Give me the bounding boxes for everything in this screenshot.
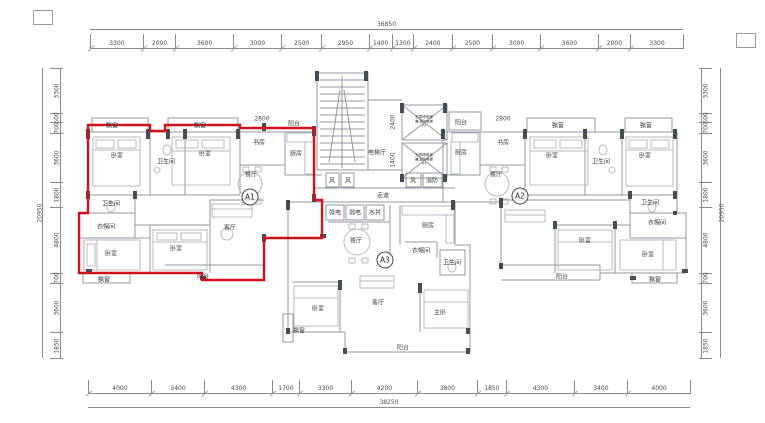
dimension-value: 4300: [533, 385, 548, 392]
room-label: 客厅: [372, 298, 384, 307]
dimension-segment: 4000: [88, 380, 151, 393]
unit-badge-a3: A3: [377, 252, 394, 269]
room-label: 卧室: [579, 236, 591, 245]
dimension-segment: 1700: [272, 380, 299, 393]
dimension-segment: 4200: [351, 380, 417, 393]
room-label: 阳台: [397, 343, 409, 352]
dimension-value: 3600: [702, 300, 709, 315]
sheet-corner-mark: [33, 10, 53, 25]
dimension-value: 2950: [338, 40, 353, 47]
unit-badge-a1: A1: [242, 189, 259, 206]
dimension-value: 4000: [112, 385, 127, 392]
dimension-value: 3400: [593, 385, 608, 392]
room-label: 消防: [426, 176, 438, 185]
dimension-segment: 4300: [506, 380, 573, 393]
room-label: 卫生间: [641, 198, 659, 207]
unit-badge-a2: A2: [512, 188, 529, 205]
sheet-corner-mark: [736, 33, 756, 48]
dimension-value: 3300: [318, 385, 333, 392]
dimension-value: 20950: [37, 203, 44, 222]
dimension-value: 3300: [53, 83, 60, 98]
dimension-value: 38250: [379, 399, 398, 406]
room-label: 厨房: [290, 149, 302, 158]
dimension-segment: 3000: [233, 34, 281, 48]
room-label: 飘窗: [98, 275, 110, 284]
structural-walls: [86, 71, 688, 354]
dimension-segment: 4800: [50, 207, 63, 272]
room-label: 卧室: [170, 244, 182, 253]
dimension-value: 2500: [294, 40, 309, 47]
dimension-value: 3000: [250, 40, 265, 47]
room-label: 飘窗: [106, 121, 118, 130]
dimension-value: 2000: [152, 40, 167, 47]
dimension-segment: 1300: [392, 34, 413, 48]
room-label: 卫生间: [592, 157, 610, 166]
dimension-segment: 3800: [417, 380, 477, 393]
room-label: 阳台: [556, 272, 568, 281]
room-label: 卧室: [312, 304, 324, 313]
room-label: 飘窗: [640, 121, 652, 130]
dimension-segment: 3600: [50, 283, 63, 332]
dimension-value: 3400: [170, 385, 185, 392]
room-label: 飘窗: [293, 326, 305, 335]
room-label: 厨房: [455, 148, 467, 157]
dimension-value: 1300: [395, 40, 410, 47]
dimension-value: 3600: [562, 40, 577, 47]
dimension-segment: 3600: [175, 34, 233, 48]
dimension-value: 3300: [109, 40, 124, 47]
dimension-segment: 3600: [540, 34, 598, 48]
dimension-segment: 700: [50, 122, 63, 132]
dimension-value: 4800: [53, 233, 60, 248]
dimension-value: 1850: [53, 338, 60, 353]
dimension-value: 4800: [702, 233, 709, 248]
dimension-chain-top: 3300200036003000250029501400130024002500…: [90, 34, 684, 49]
dimension-value: 1700: [278, 385, 293, 392]
dimension-value: 1400: [373, 40, 388, 47]
dimension-segment: 3300: [699, 68, 712, 113]
room-label: 飘窗: [649, 275, 661, 284]
room-label: 衣帽间: [648, 218, 666, 227]
room-label: 餐厅: [245, 170, 257, 179]
floor-plan-sheet: 36850 3300200036003000250029501400130024…: [0, 0, 765, 423]
dimension-segment: 3300: [50, 68, 63, 113]
dimension-segment: 1400: [369, 34, 392, 48]
room-label: 厨房: [422, 221, 434, 230]
dimension-value: 3300: [649, 40, 664, 47]
dimension-segment: 4800: [699, 207, 712, 272]
dimension-total-right: 20950: [716, 68, 728, 358]
dimension-segment: 1800: [699, 182, 712, 207]
elevator-note: 无障碍电梯兼消防电梯01: [405, 154, 443, 166]
dimension-value: 1800: [702, 187, 709, 202]
dimension-segment: 4300: [204, 380, 271, 393]
dimension-value: 3600: [702, 150, 709, 165]
dimension-value: 3600: [53, 300, 60, 315]
room-label: 卧室: [111, 151, 123, 160]
room-label: 餐厅: [350, 236, 362, 245]
dimension-segment: 2000: [598, 34, 630, 48]
floor-plan-svg: [0, 0, 765, 423]
interior-dimension: 2400: [390, 114, 397, 129]
room-label: 餐厅: [490, 170, 502, 179]
room-label: 书房: [497, 138, 509, 147]
dimension-chain-right: 330060070036001800480070036001850: [699, 68, 712, 359]
dimension-segment: 600: [699, 113, 712, 122]
room-label: 衣帽间: [412, 246, 430, 255]
dimension-value: 3300: [702, 83, 709, 98]
room-label: 阳台: [197, 272, 209, 281]
room-label: 阳台: [288, 119, 300, 128]
dimension-value: 3800: [440, 385, 455, 392]
dimension-segment: 700: [50, 273, 63, 283]
room-label: 客厅: [224, 223, 236, 232]
dimension-value: 3600: [53, 150, 60, 165]
room-label: 卧室: [105, 249, 117, 258]
dimension-value: 3600: [197, 40, 212, 47]
room-label: 卧室: [642, 250, 654, 259]
building-walls: [79, 73, 686, 352]
dimension-segment: 4000: [627, 380, 690, 393]
dimension-segment: 2000: [143, 34, 175, 48]
dimension-segment: 3000: [492, 34, 540, 48]
dimension-total-top: 36850: [90, 20, 683, 30]
room-label: 水井: [369, 208, 381, 217]
dimension-value: 2500: [465, 40, 480, 47]
room-label: 走道: [377, 191, 389, 200]
dimension-chain-left: 330060070036001800480070036001850: [50, 68, 63, 359]
room-label: 阳台: [455, 118, 467, 127]
dimension-segment: 3600: [50, 133, 63, 182]
dimension-segment: 2500: [452, 34, 492, 48]
dimension-value: 1800: [53, 187, 60, 202]
dimension-segment: 2400: [413, 34, 452, 48]
room-label: 风: [345, 176, 351, 185]
dimension-value: 2400: [425, 40, 440, 47]
dimension-segment: 1800: [50, 182, 63, 207]
dimension-value: 4300: [231, 385, 246, 392]
room-label: 卧室: [546, 151, 558, 160]
dimension-segment: 2950: [321, 34, 368, 48]
room-label: 衣帽间: [97, 222, 115, 231]
room-label: 强电: [329, 208, 341, 217]
dimension-segment: 600: [50, 113, 63, 122]
dimension-segment: 2500: [281, 34, 321, 48]
room-label: 飘窗: [194, 121, 206, 130]
dimension-value: 2000: [607, 40, 622, 47]
dimension-total-left: 20950: [34, 68, 46, 358]
room-label: 卫生间: [102, 199, 120, 208]
dimension-segment: 1850: [699, 332, 712, 358]
dimension-total-bottom: 38250: [88, 398, 690, 408]
dimension-segment: 3400: [574, 380, 628, 393]
room-label: 飘窗: [552, 121, 564, 130]
interior-dimension: 1400: [390, 152, 397, 167]
dimension-value: 1850: [702, 338, 709, 353]
room-label: 卧室: [199, 149, 211, 158]
room-label: 电梯厅: [368, 148, 386, 157]
dimension-segment: 3600: [699, 133, 712, 182]
dimension-value: 1850: [484, 385, 499, 392]
room-label: 风: [329, 176, 335, 185]
dimension-value: 3000: [509, 40, 524, 47]
interior-dimension: 2800: [254, 116, 269, 123]
dimension-segment: 1850: [50, 332, 63, 358]
room-label: 卧室: [639, 151, 651, 160]
dimension-value: 36850: [377, 21, 396, 28]
room-label: 书房: [253, 138, 265, 147]
dimension-segment: 3300: [630, 34, 683, 48]
dimension-value: 4200: [377, 385, 392, 392]
room-label: 弱电: [349, 208, 361, 217]
room-label: 卫生间: [443, 258, 461, 267]
dimension-value: 20950: [719, 203, 726, 222]
dimension-segment: 700: [699, 122, 712, 132]
dimension-value: 4000: [651, 385, 666, 392]
dimension-segment: 3300: [90, 34, 143, 48]
dimension-segment: 700: [699, 273, 712, 283]
dimension-segment: 1850: [477, 380, 507, 393]
room-label: 风: [410, 176, 416, 185]
room-label: 卫生间: [157, 157, 175, 166]
dimension-segment: 3300: [299, 380, 351, 393]
room-label: 主卧: [434, 308, 446, 317]
dimension-segment: 3600: [699, 283, 712, 332]
interior-dimension: 2800: [495, 116, 510, 123]
elevator-note: 无障碍电梯兼消防电梯02: [405, 116, 443, 128]
dimension-chain-bottom: 4000340043001700330042003800185043003400…: [88, 380, 691, 394]
dimension-segment: 3400: [151, 380, 205, 393]
